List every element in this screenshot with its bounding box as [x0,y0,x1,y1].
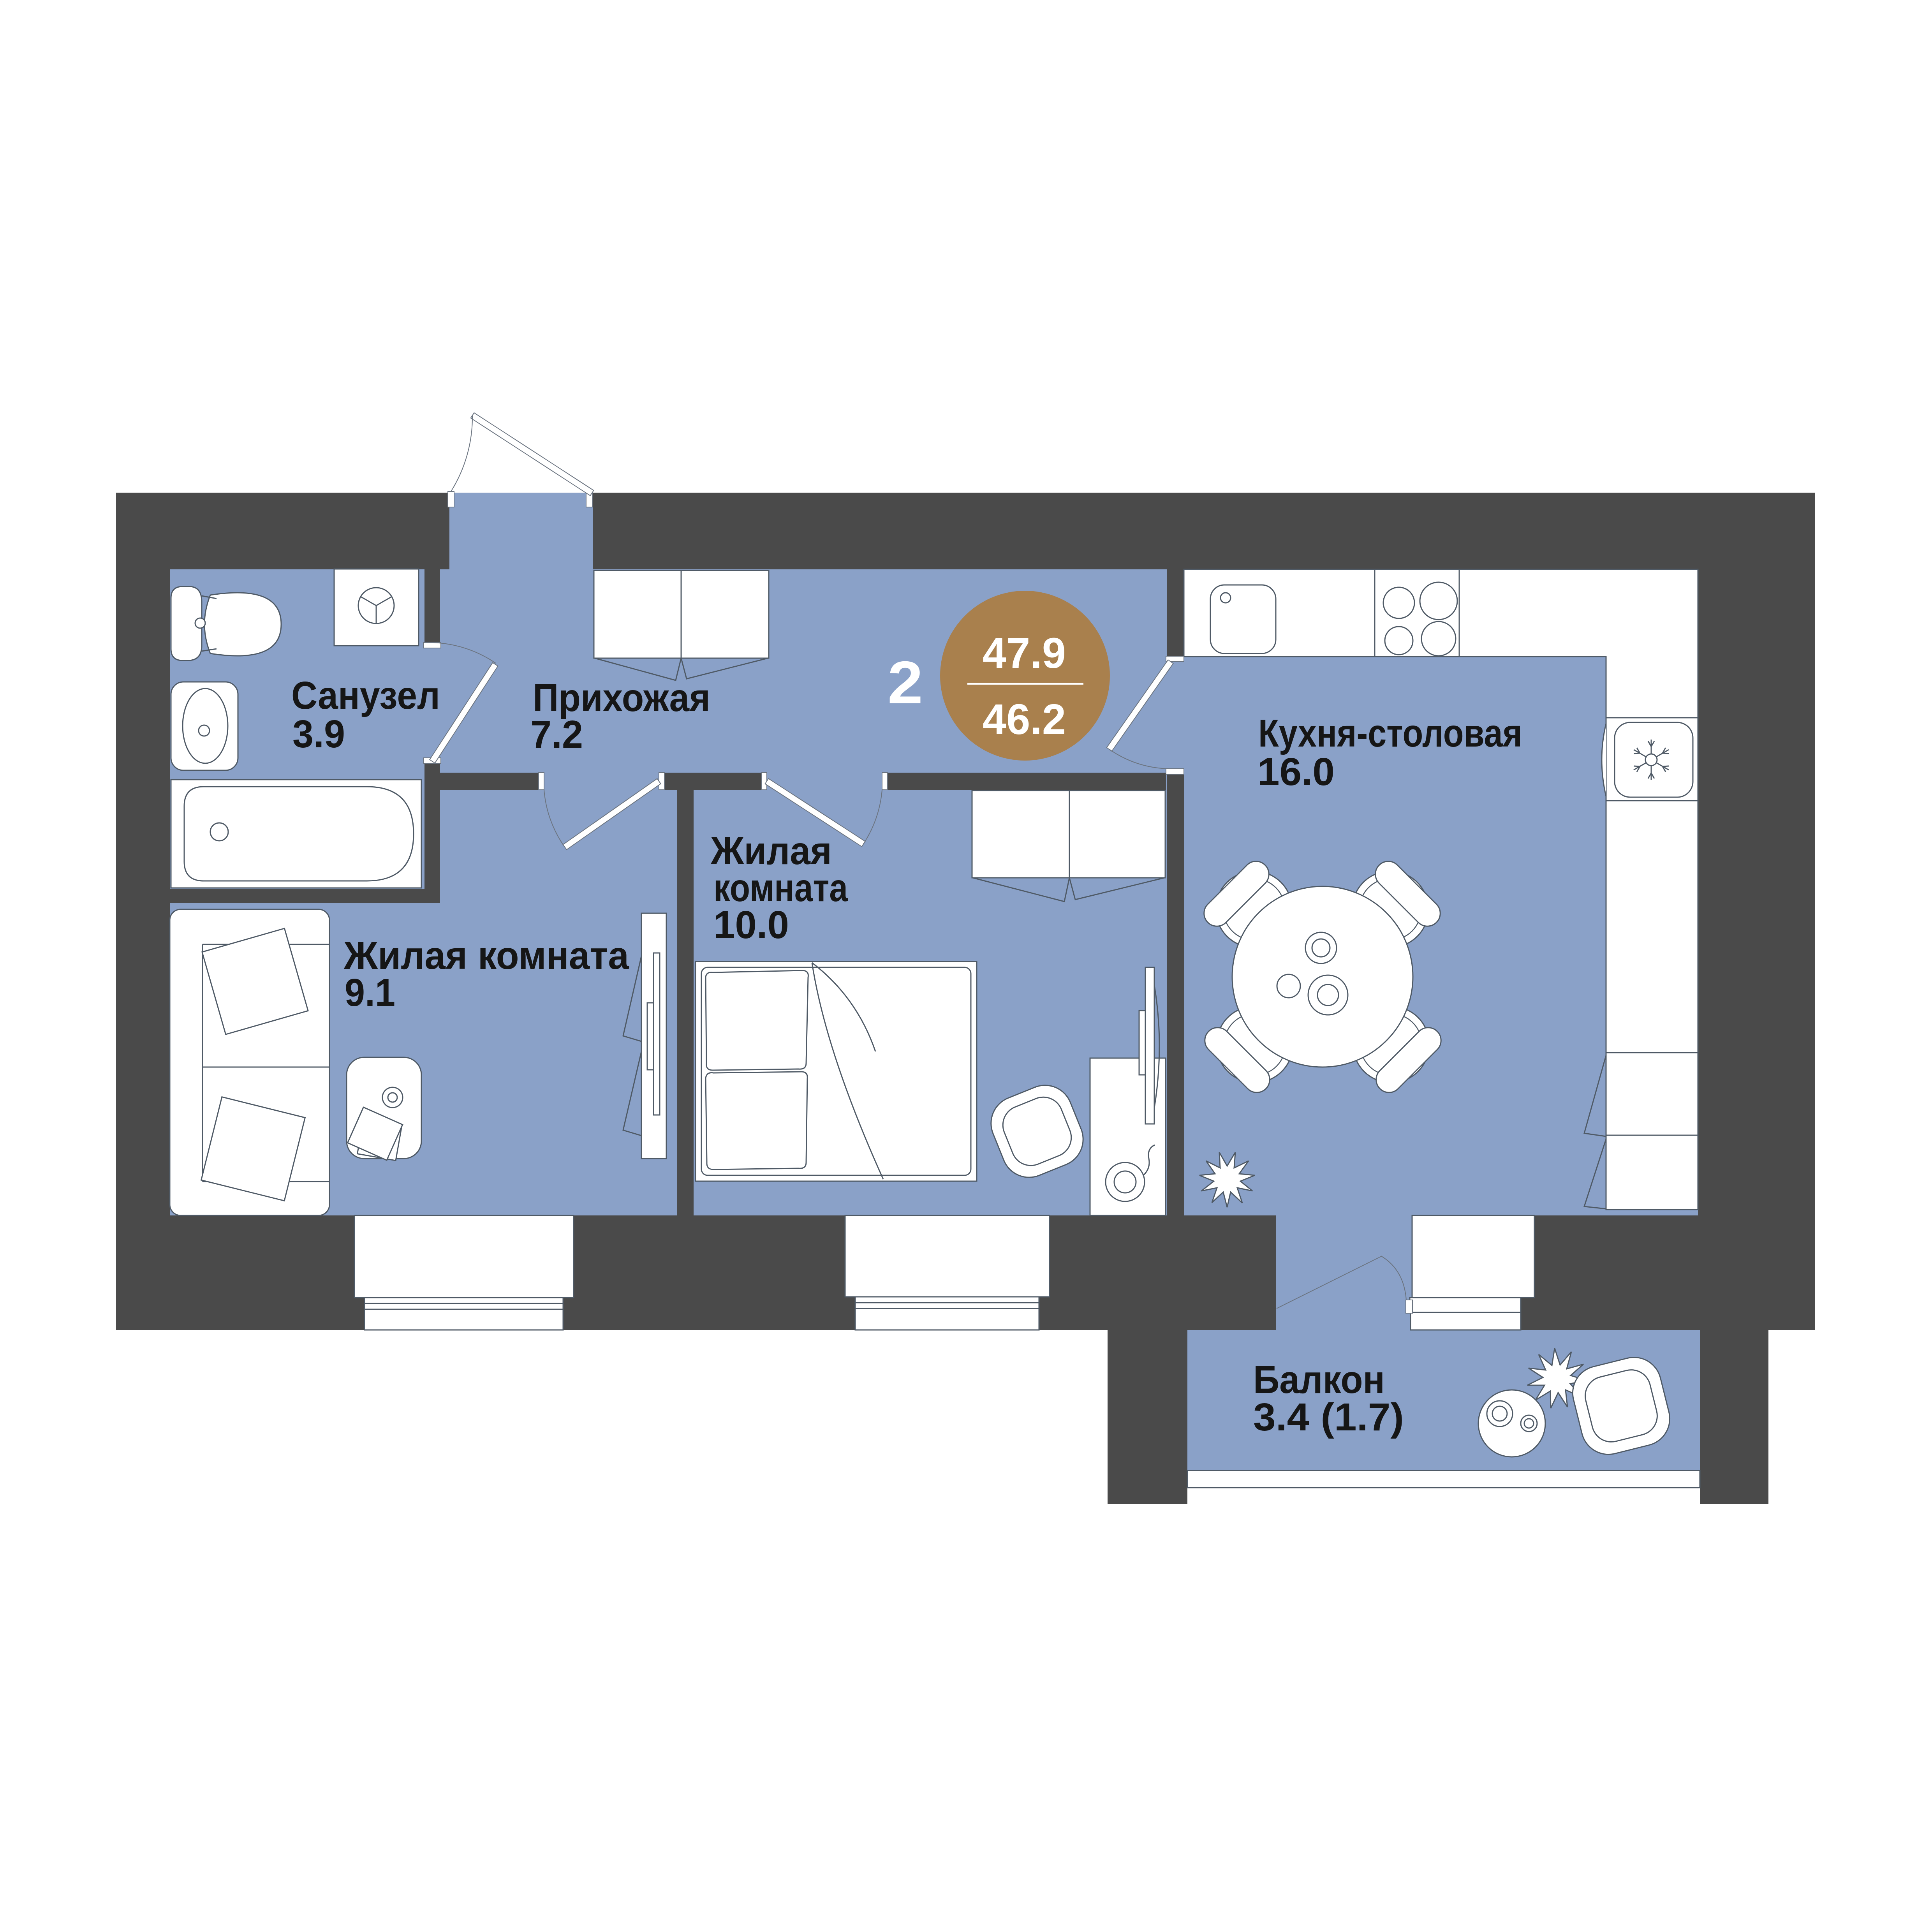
svg-text:2: 2 [888,649,923,716]
svg-text:10.0: 10.0 [713,903,789,947]
svg-text:46.2: 46.2 [983,696,1066,743]
svg-text:47.9: 47.9 [983,629,1066,677]
svg-text:Кухня-столовая: Кухня-столовая [1258,712,1522,755]
svg-text:Санузел: Санузел [291,674,440,717]
svg-text:3.4 (1.7): 3.4 (1.7) [1253,1395,1404,1439]
svg-text:3.9: 3.9 [292,712,345,756]
svg-text:16.0: 16.0 [1257,750,1335,794]
svg-text:7.2: 7.2 [530,713,583,756]
svg-text:9.1: 9.1 [345,971,395,1014]
